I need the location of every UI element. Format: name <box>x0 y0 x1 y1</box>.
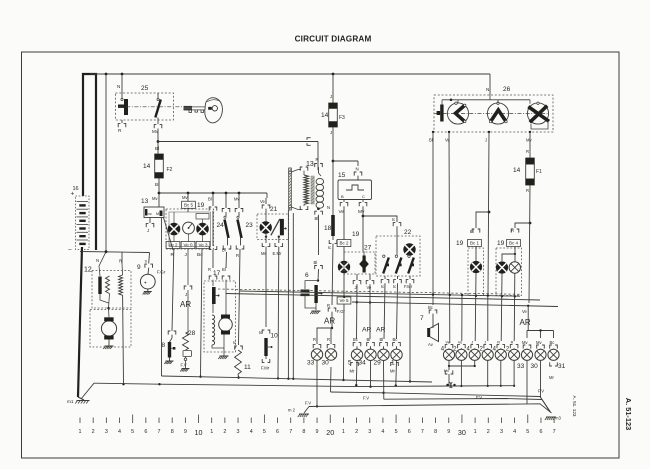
svg-text:A. 51-123: A. 51-123 <box>624 398 633 430</box>
svg-text:AR: AR <box>324 317 335 326</box>
svg-text:R: R <box>119 259 122 264</box>
svg-text:J: J <box>484 341 486 345</box>
svg-text:AR: AR <box>362 327 372 334</box>
svg-text:Ve: Ve <box>339 209 345 215</box>
svg-text:Mv: Mv <box>358 209 365 215</box>
svg-text:Ic: Ic <box>328 245 331 250</box>
svg-text:Mv: Mv <box>152 196 158 201</box>
svg-text:F2: F2 <box>167 167 173 173</box>
svg-text:Bl: Bl <box>222 248 226 253</box>
svg-text:+: + <box>144 281 147 287</box>
svg-text:m 2: m 2 <box>288 408 296 413</box>
svg-text:31: 31 <box>558 363 566 370</box>
svg-text:Bc 2: Bc 2 <box>339 241 349 246</box>
svg-text:15: 15 <box>338 172 346 179</box>
svg-text:J: J <box>471 341 473 345</box>
svg-text:m3: m3 <box>555 416 561 421</box>
svg-text:N: N <box>327 205 330 210</box>
svg-text:J: J <box>330 130 332 135</box>
svg-text:J: J <box>147 228 149 233</box>
svg-text:Mr: Mr <box>350 369 355 374</box>
svg-text:8: 8 <box>171 429 174 435</box>
svg-text:4: 4 <box>118 429 121 435</box>
svg-text:5: 5 <box>131 429 134 435</box>
svg-text:19: 19 <box>352 231 360 238</box>
svg-text:R: R <box>511 341 514 345</box>
svg-text:Bl: Bl <box>208 197 212 202</box>
svg-text:Bc 4: Bc 4 <box>509 241 519 246</box>
svg-text:Ic: Ic <box>259 330 262 335</box>
svg-text:3: 3 <box>368 429 371 435</box>
svg-text:R: R <box>327 337 330 342</box>
svg-text:19: 19 <box>456 240 464 247</box>
svg-text:Ve: Ve <box>260 199 266 204</box>
svg-text:7: 7 <box>289 429 292 435</box>
svg-text:4: 4 <box>513 429 516 435</box>
svg-text:3: 3 <box>500 429 503 435</box>
svg-text:5: 5 <box>263 429 266 435</box>
svg-text:30: 30 <box>322 360 330 367</box>
svg-text:Ve: Ve <box>522 309 528 314</box>
svg-text:2: 2 <box>92 429 95 435</box>
svg-text:Mr: Mr <box>549 375 554 380</box>
svg-text:26: 26 <box>503 86 511 93</box>
svg-text:AR: AR <box>520 318 531 327</box>
svg-text:Ic: Ic <box>393 284 396 289</box>
svg-text:22: 22 <box>404 229 412 236</box>
svg-text:25: 25 <box>141 85 149 92</box>
svg-text:Bl: Bl <box>380 337 384 342</box>
svg-text:29: 29 <box>374 360 382 367</box>
svg-text:5: 5 <box>395 429 398 435</box>
svg-text:AR: AR <box>376 327 386 334</box>
svg-text:N: N <box>356 166 359 171</box>
svg-text:F1: F1 <box>536 169 542 175</box>
svg-text:N: N <box>96 258 99 263</box>
svg-text:30: 30 <box>458 428 466 437</box>
svg-text:7: 7 <box>158 429 161 435</box>
svg-text:24: 24 <box>217 222 225 229</box>
svg-text:R: R <box>208 267 211 272</box>
svg-text:27: 27 <box>364 245 372 252</box>
svg-text:M: M <box>156 212 159 216</box>
svg-text:14: 14 <box>321 112 329 119</box>
svg-text:28: 28 <box>188 330 196 337</box>
svg-text:Bc: Bc <box>550 340 555 345</box>
svg-text:Bl: Bl <box>429 138 433 143</box>
svg-text:34: 34 <box>359 360 367 367</box>
svg-text:6: 6 <box>305 272 309 279</box>
svg-text:4: 4 <box>381 429 384 435</box>
svg-text:Ve 2: Ve 2 <box>168 243 178 248</box>
svg-text:Ve: Ve <box>458 341 462 345</box>
svg-text:Ve 3: Ve 3 <box>198 243 208 248</box>
svg-text:Ic: Ic <box>233 340 236 345</box>
svg-text:9: 9 <box>184 429 187 435</box>
svg-text:Bl: Bl <box>367 337 371 342</box>
svg-text:R: R <box>313 337 316 342</box>
svg-text:J: J <box>185 292 187 297</box>
svg-text:14: 14 <box>513 167 521 174</box>
svg-text:19: 19 <box>197 202 205 209</box>
svg-text:F.Gr: F.Gr <box>157 270 166 275</box>
svg-text:12: 12 <box>84 267 92 274</box>
svg-text:B: B <box>341 194 344 199</box>
svg-text:E.Mr: E.Mr <box>273 251 282 256</box>
svg-text:33: 33 <box>307 360 315 367</box>
svg-text:8: 8 <box>302 429 305 435</box>
svg-text:6: 6 <box>144 429 147 435</box>
svg-text:8: 8 <box>434 429 437 435</box>
svg-text:Mv: Mv <box>522 340 528 345</box>
svg-text:2: 2 <box>223 429 226 435</box>
svg-text:33: 33 <box>517 363 525 370</box>
svg-text:Bc: Bc <box>428 305 433 310</box>
svg-text:A. 51. 123: A. 51. 123 <box>572 396 577 417</box>
svg-text:AR: AR <box>180 300 191 309</box>
svg-text:1: 1 <box>210 429 213 435</box>
svg-text:R: R <box>327 303 330 308</box>
svg-text:J: J <box>485 138 487 143</box>
svg-text:J: J <box>330 94 332 99</box>
svg-text:1: 1 <box>79 429 82 435</box>
svg-text:Ve 5: Ve 5 <box>339 298 349 303</box>
svg-text:6: 6 <box>539 429 542 435</box>
svg-text:Ve: Ve <box>367 285 373 290</box>
svg-text:Ic: Ic <box>381 284 384 289</box>
svg-text:2: 2 <box>487 429 490 435</box>
svg-text:13: 13 <box>141 198 149 205</box>
svg-text:Bc 5: Bc 5 <box>184 202 194 207</box>
svg-text:F.Mr: F.Mr <box>404 284 413 289</box>
svg-text:F3: F3 <box>339 115 345 121</box>
svg-text:Bl: Bl <box>315 216 319 221</box>
svg-text:Bl: Bl <box>155 182 159 187</box>
svg-text:Ve 0: Ve 0 <box>183 243 193 248</box>
svg-text:Bc 1: Bc 1 <box>470 241 480 246</box>
svg-text:1: 1 <box>474 429 477 435</box>
svg-text:Bc: Bc <box>353 337 358 342</box>
svg-text:10: 10 <box>195 428 203 437</box>
svg-text:Mv: Mv <box>444 369 449 373</box>
svg-text:N: N <box>486 87 489 92</box>
svg-text:18: 18 <box>324 225 332 232</box>
svg-text:Mv: Mv <box>234 197 240 202</box>
svg-text:5: 5 <box>348 360 352 367</box>
svg-text:CIRCUIT DIAGRAM: CIRCUIT DIAGRAM <box>295 35 372 44</box>
svg-text:30: 30 <box>531 363 539 370</box>
svg-text:Mv: Mv <box>182 195 188 200</box>
svg-text:9: 9 <box>137 264 141 271</box>
svg-text:C: C <box>362 194 365 199</box>
svg-text:R: R <box>526 188 529 193</box>
svg-text:Ve: Ve <box>446 341 450 345</box>
svg-text:2: 2 <box>355 429 358 435</box>
svg-text:7: 7 <box>553 429 556 435</box>
svg-text:R: R <box>497 341 500 345</box>
svg-text:9: 9 <box>316 429 319 435</box>
svg-text:+: + <box>71 191 75 198</box>
svg-text:8: 8 <box>162 342 166 349</box>
svg-text:Ic: Ic <box>392 217 395 222</box>
svg-text:m1: m1 <box>67 399 74 404</box>
svg-text:Bc: Bc <box>393 337 398 342</box>
svg-text:Bl: Bl <box>222 267 226 272</box>
svg-text:3: 3 <box>237 429 240 435</box>
svg-text:Bl: Bl <box>314 260 318 265</box>
svg-text:6: 6 <box>276 429 279 435</box>
svg-text:Mv: Mv <box>526 138 532 143</box>
svg-text:F.V: F.V <box>476 395 482 400</box>
svg-text:F.V: F.V <box>363 396 369 401</box>
svg-text:1: 1 <box>342 429 345 435</box>
svg-text:14: 14 <box>143 163 151 170</box>
svg-text:Ve: Ve <box>445 138 451 143</box>
svg-text:3: 3 <box>105 429 108 435</box>
svg-text:5: 5 <box>526 429 529 435</box>
svg-text:6: 6 <box>408 429 411 435</box>
svg-text:Mv: Mv <box>536 340 542 345</box>
svg-text:11: 11 <box>244 364 251 371</box>
svg-text:F.Mr: F.Mr <box>261 366 270 371</box>
svg-text:F.V: F.V <box>305 401 311 406</box>
svg-text:7: 7 <box>420 315 424 322</box>
svg-text:9: 9 <box>447 429 450 435</box>
svg-text:21: 21 <box>270 206 278 213</box>
svg-text:Mr: Mr <box>390 369 395 374</box>
svg-text:19: 19 <box>497 240 505 247</box>
svg-text:Bl: Bl <box>155 146 159 151</box>
svg-text:R: R <box>316 157 319 162</box>
svg-text:1: 1 <box>391 360 395 367</box>
svg-text:R: R <box>236 253 239 258</box>
svg-text:20: 20 <box>326 428 334 437</box>
svg-text:J: J <box>355 285 357 290</box>
svg-text:23: 23 <box>246 222 254 229</box>
svg-text:F.V: F.V <box>538 389 544 394</box>
svg-text:4: 4 <box>250 429 253 435</box>
svg-text:7: 7 <box>421 429 424 435</box>
svg-text:−: − <box>68 247 72 254</box>
svg-text:N: N <box>117 84 120 89</box>
svg-text:R: R <box>526 149 529 154</box>
svg-text:10: 10 <box>271 333 279 340</box>
